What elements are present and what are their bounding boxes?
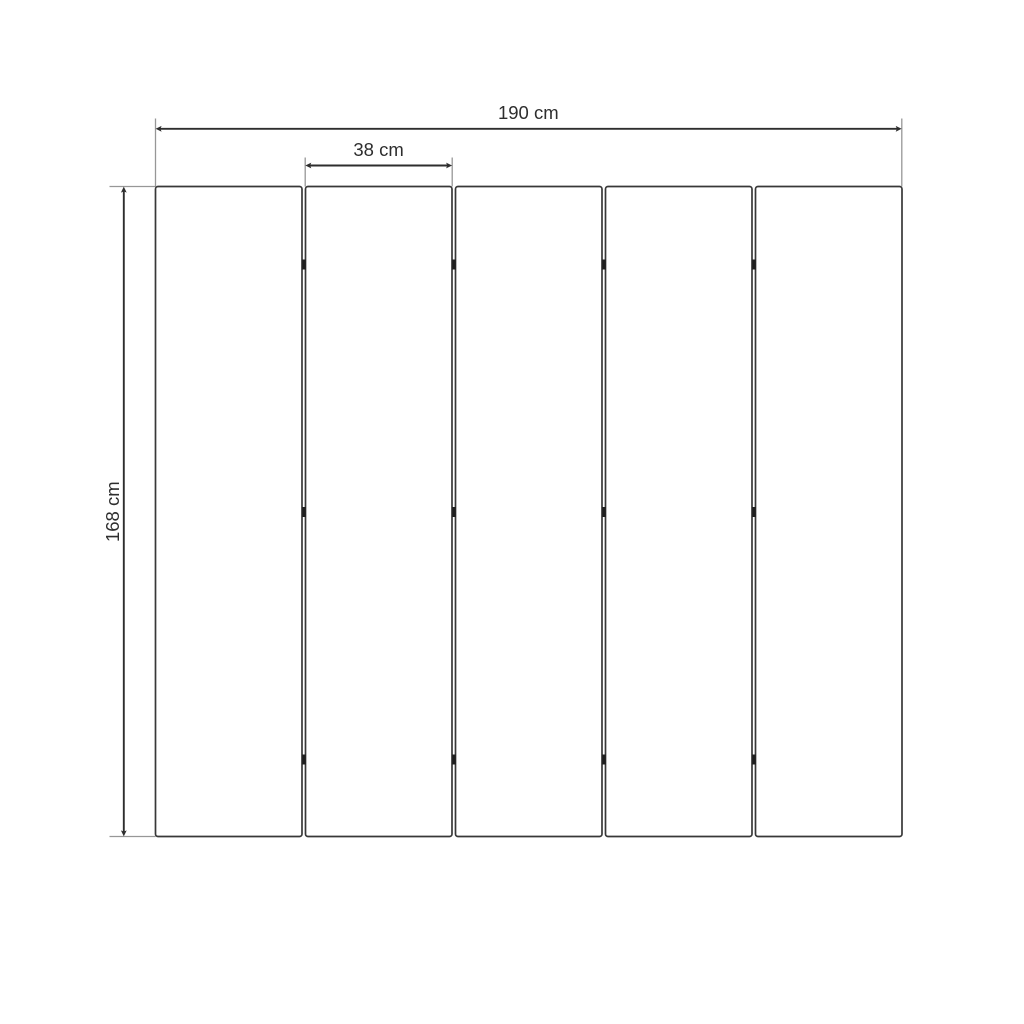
- svg-text:38 cm: 38 cm: [353, 139, 403, 160]
- svg-text:190 cm: 190 cm: [498, 102, 559, 123]
- svg-text:168 cm: 168 cm: [102, 481, 123, 542]
